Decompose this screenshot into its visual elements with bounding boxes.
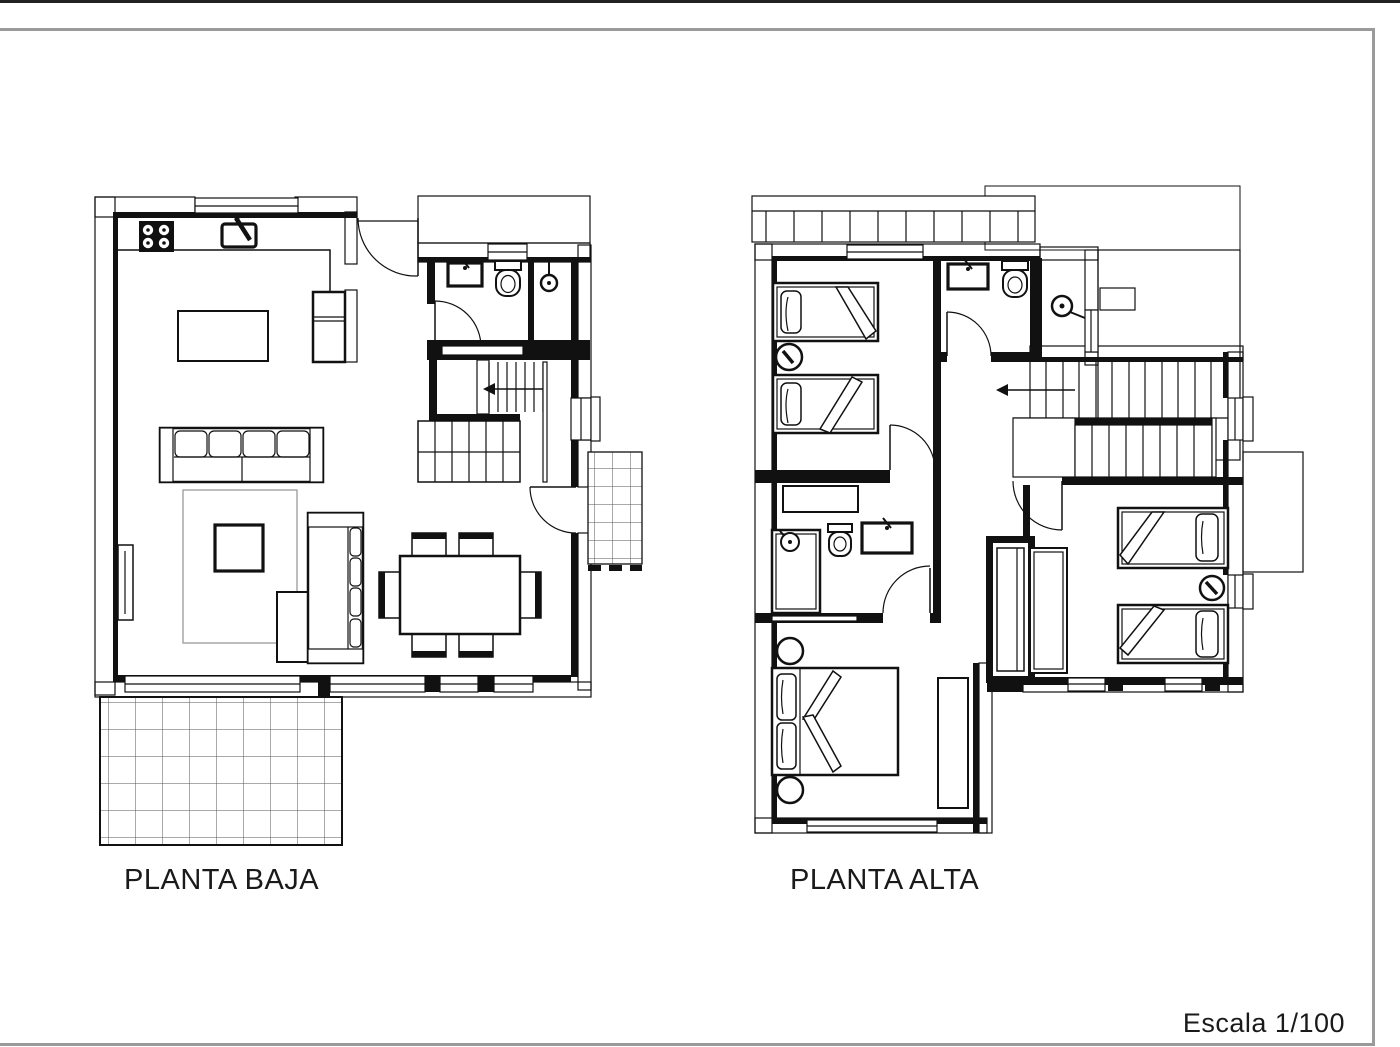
bathroom-sink-icon	[948, 259, 988, 289]
coffee-table	[215, 525, 263, 571]
gf-entrance	[358, 218, 418, 276]
sofa	[160, 428, 323, 482]
wardrobe	[1030, 548, 1067, 673]
kitchen-stove-icon	[139, 221, 174, 252]
bedroom1-door-arc	[890, 425, 935, 470]
gf-side-door-arc	[530, 487, 576, 533]
gf-porch	[588, 452, 642, 568]
single-bed	[1118, 508, 1228, 568]
shower-tray	[772, 530, 820, 613]
dining-chair	[412, 634, 446, 657]
uf-mullion-1	[1108, 678, 1123, 691]
stair-rail-band	[482, 414, 520, 421]
shower-icon	[1052, 296, 1085, 318]
stair-rail-band	[1075, 418, 1212, 425]
gf-mullion-1	[425, 676, 440, 692]
gf-bathroom	[427, 258, 590, 360]
gf-bathroom-window	[488, 244, 527, 260]
terrace-step	[1100, 288, 1135, 310]
uf-right-window-2	[1228, 574, 1253, 609]
nightstand-lamp-icon	[1200, 576, 1224, 600]
dining-chair	[459, 634, 493, 657]
balcony-railing	[752, 196, 1035, 242]
bedside-stool	[777, 777, 803, 803]
gf-terrace-tiles	[100, 697, 342, 845]
toilet-icon	[495, 261, 521, 296]
toilet-icon	[828, 524, 852, 556]
planta-baja-plan	[95, 196, 642, 845]
stair-treads-lower	[418, 421, 520, 482]
stair-rail	[543, 362, 547, 482]
uf-front-bedroom	[773, 283, 935, 470]
closet-wardrobe	[997, 548, 1024, 671]
nightstand-lamp-icon	[776, 344, 802, 370]
gf-dining-area	[379, 533, 541, 657]
shower-icon	[541, 258, 557, 291]
uf-terrace-door	[1085, 310, 1098, 352]
uf-rear-bedroom	[1013, 481, 1228, 673]
gf-wall-pier	[318, 675, 330, 697]
kitchen-cabinet	[313, 292, 345, 362]
planta-alta-label: PLANTA ALTA	[790, 864, 979, 897]
uf-closet	[986, 536, 1035, 683]
uf-right-window-1	[1228, 397, 1253, 441]
drawing-sheet: PLANTA BAJA PLANTA ALTA Escala 1/100	[0, 0, 1400, 1047]
dining-chair	[412, 533, 446, 556]
stair-landing	[1013, 418, 1075, 477]
dining-chair	[459, 533, 493, 556]
single-bed	[773, 283, 878, 341]
kitchen-island	[178, 311, 268, 361]
uf-master-window	[807, 820, 937, 832]
bathroom2-door-arc	[883, 566, 930, 613]
wall-niche	[772, 616, 857, 621]
gf-living-room	[118, 428, 363, 663]
gf-mullion-2	[478, 676, 494, 692]
planta-alta-plan	[752, 186, 1303, 833]
gf-south-window-large	[125, 676, 300, 692]
bathroom-sink-icon	[448, 258, 482, 286]
bedside-stool	[777, 638, 803, 664]
dining-chair	[379, 572, 400, 618]
wall-niche	[442, 346, 523, 355]
toilet-icon	[1002, 261, 1028, 297]
uf-front-window	[847, 245, 923, 259]
bathroom-wall	[427, 258, 435, 304]
kitchen-sink-icon	[222, 217, 256, 248]
double-bed	[772, 668, 898, 775]
single-bed	[1118, 605, 1228, 663]
stair-treads-lower	[1075, 425, 1212, 477]
planta-baja-label: PLANTA BAJA	[124, 864, 319, 897]
stair-treads-upper	[489, 362, 543, 412]
single-bed	[773, 375, 878, 433]
gf-south-window-4	[494, 676, 533, 692]
side-terrace-outline	[1243, 452, 1303, 572]
stair-rail	[1212, 418, 1216, 477]
gf-canopy-outline	[418, 196, 590, 243]
gf-stairs	[418, 360, 547, 482]
gf-right-window	[571, 397, 600, 441]
gf-kitchen-window	[195, 198, 298, 213]
gf-south-window-2	[330, 676, 425, 692]
uf-stairs	[996, 362, 1228, 477]
bathroom-sink-icon	[862, 518, 912, 553]
scale-label: Escala 1/100	[1130, 1008, 1345, 1039]
uf-bathroom2	[772, 486, 930, 613]
desk	[938, 678, 968, 808]
chaise-sofa	[308, 513, 363, 663]
gf-south-window-3	[440, 676, 478, 692]
bathroom1-door-arc	[947, 312, 991, 356]
shower-partition	[528, 258, 534, 342]
uf-bathroom1	[947, 259, 1085, 356]
uf-rear-window-2	[1165, 678, 1202, 691]
entrance-door-arc	[358, 218, 418, 276]
uf-master-bedroom	[772, 638, 968, 808]
kitchen-counter-edge	[115, 250, 330, 293]
dining-chair	[520, 572, 541, 618]
dining-table	[400, 556, 520, 634]
uf-mullion-2	[1205, 678, 1220, 691]
gf-kitchen	[115, 217, 345, 363]
bedroom3-door-arc	[1013, 481, 1062, 530]
vanity-counter	[783, 486, 858, 512]
uf-rear-window-1	[1068, 678, 1105, 691]
